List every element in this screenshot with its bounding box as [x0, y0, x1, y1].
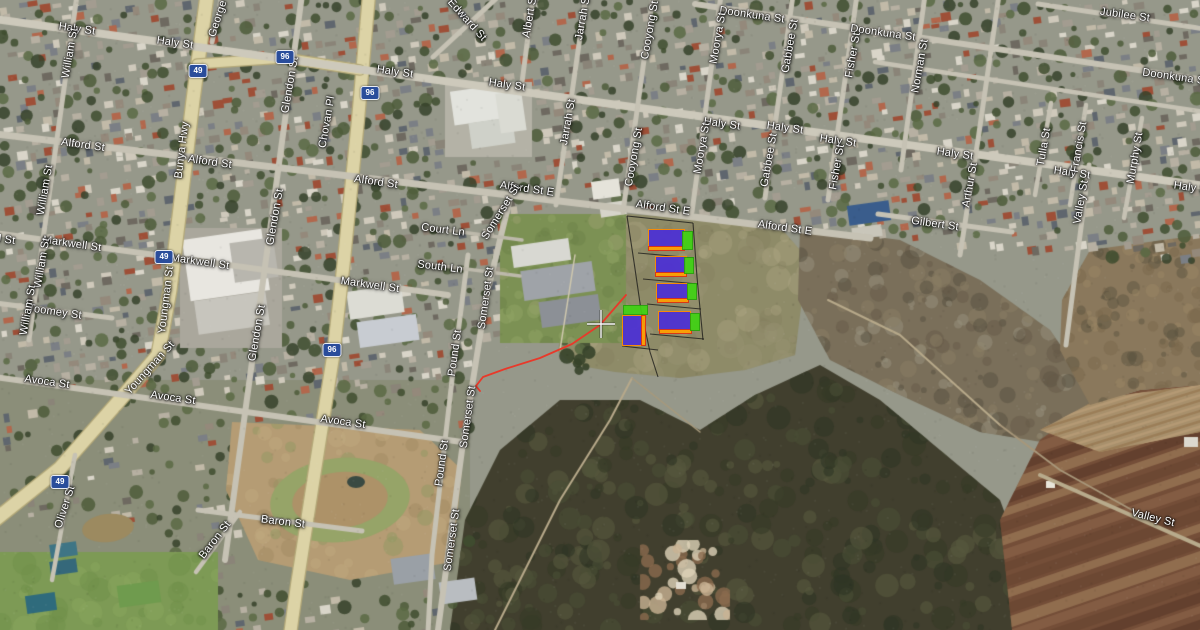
overlay-lot-green[interactable] [687, 283, 697, 300]
crosshair-cursor [587, 310, 615, 338]
overlay-lot-green[interactable] [623, 305, 648, 315]
overlay-lot-orange[interactable] [657, 298, 689, 303]
map-viewport[interactable]: Haly StHaly StHaly StHaly StHaly StHaly … [0, 0, 1200, 630]
overlay-lot-green[interactable] [684, 257, 694, 274]
overlay-lot-orange[interactable] [655, 272, 687, 277]
overlay-lot-purple[interactable] [622, 315, 642, 346]
overlay-lot-purple[interactable] [658, 311, 691, 331]
overlay-lot-orange[interactable] [659, 329, 692, 334]
overlay-lot-orange[interactable] [648, 246, 685, 251]
overlay-lot-orange[interactable] [641, 315, 646, 346]
overlay-lot-green[interactable] [690, 313, 700, 331]
overlay-lot-green[interactable] [682, 231, 693, 250]
